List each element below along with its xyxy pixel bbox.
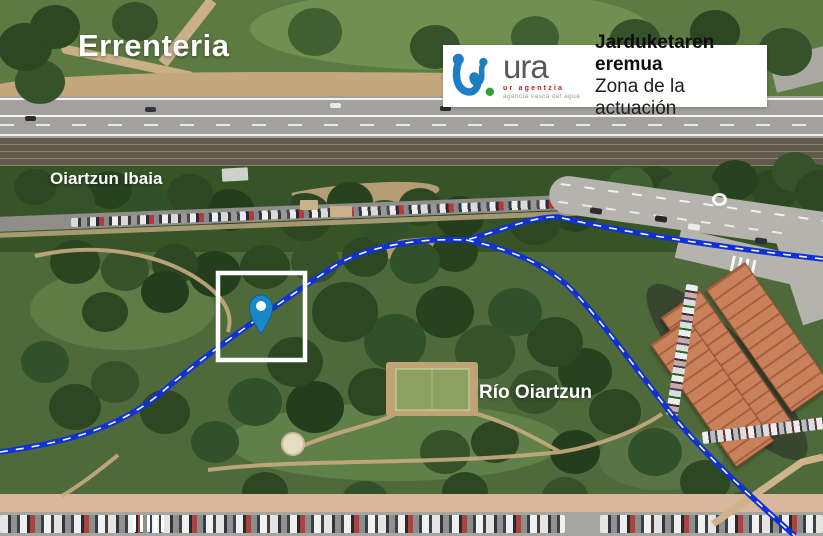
- ura-logo-mark-icon: [449, 50, 501, 102]
- logo-green-dot: [486, 88, 494, 96]
- park-path: [300, 414, 395, 447]
- map-canvas: Errenteria Oiartzun Ibaia Río Oiartzun u…: [0, 0, 823, 536]
- legend-title-eu: Jarduketaren eremua: [595, 32, 759, 76]
- plaza: [282, 433, 304, 455]
- park-path: [470, 412, 560, 452]
- sports-field: [386, 362, 478, 416]
- ura-logo-tagline-es: agencia vasca del agua: [503, 93, 580, 100]
- legend-title-es: Zona de la actuación: [595, 76, 759, 120]
- legend-panel: ura ur agentzia agencia vasca del agua J…: [443, 45, 767, 107]
- map-title: Errenteria: [78, 28, 229, 64]
- park-path: [208, 452, 560, 470]
- river-label-oiartzun-ibaia: Oiartzun Ibaia: [50, 169, 162, 189]
- ura-logo: ura ur agentzia agencia vasca del agua: [449, 50, 585, 102]
- river-label-rio-oiartzun: Río Oiartzun: [479, 382, 592, 404]
- ura-logo-tagline-eu: ur agentzia: [503, 85, 580, 92]
- ura-logo-word: ura: [503, 52, 580, 82]
- park-path: [35, 250, 230, 332]
- location-pin-icon[interactable]: [250, 295, 273, 334]
- park-path: [560, 414, 662, 452]
- park-path: [62, 455, 118, 496]
